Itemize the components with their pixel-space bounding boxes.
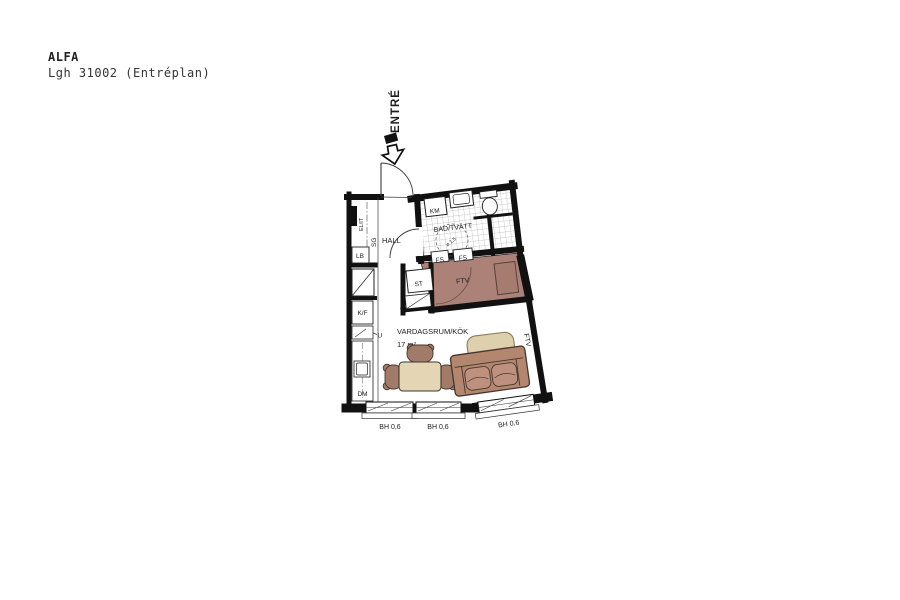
page: ALFA Lgh 31002 (Entréplan) ENTRÉ FTV [0, 0, 900, 600]
dining-table [399, 362, 441, 391]
shaft-box [352, 269, 374, 296]
lb-label: LB [356, 253, 364, 260]
entrance-label: ENTRÉ [389, 89, 402, 133]
oven-label: U [378, 333, 383, 340]
st-lower-box [405, 293, 431, 309]
alcove-label: FTV [456, 277, 470, 285]
window-2-label: BH 0,6 [427, 424, 449, 431]
entrance-marker: ENTRÉ [382, 89, 403, 164]
entrance-arrow-tail-icon [384, 133, 398, 145]
window-3-label: BH 0,6 [498, 420, 520, 430]
dishwasher-label: DM [357, 391, 367, 398]
floor-plan-svg: ENTRÉ FTV [0, 0, 900, 600]
fridge-freezer-label: K/F [357, 310, 367, 317]
sg-label: SG [371, 238, 378, 247]
entrance-threshold [381, 197, 412, 198]
living-room-label: VARDAGSRUM/KÖK [397, 327, 468, 336]
st-label: ST [414, 281, 423, 289]
entrance-arrow-icon [382, 145, 403, 165]
st-closet: ST [405, 268, 433, 309]
window-2 [412, 402, 465, 419]
bathroom-door-opening [413, 227, 423, 256]
oven [352, 326, 377, 339]
bathroom-sink [449, 190, 474, 208]
elit-label: EL/IT [359, 217, 365, 231]
window-1 [362, 402, 417, 419]
kitchen-sink-basin [357, 363, 368, 375]
dining-chair-top [407, 344, 434, 362]
alcove-shelf [494, 261, 519, 294]
fs-right-label: FS [458, 255, 468, 263]
window-1-label: BH 0,6 [379, 424, 401, 431]
fs-left-label: FS [435, 257, 445, 265]
washing-machine-label: KM [430, 207, 441, 215]
elit-cabinet [351, 206, 358, 226]
hall-label: HALL [382, 236, 401, 245]
